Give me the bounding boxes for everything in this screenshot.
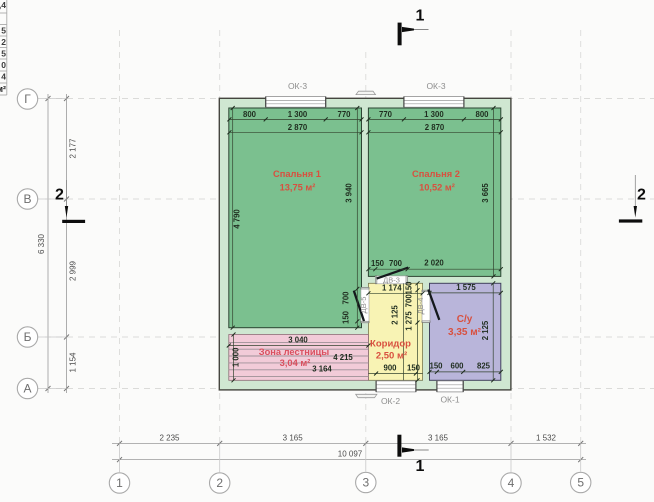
svg-text:2: 2	[637, 187, 646, 204]
svg-text:5: 5	[1, 25, 6, 35]
svg-text:3 165: 3 165	[283, 434, 304, 443]
svg-text:3 040: 3 040	[288, 336, 308, 345]
svg-text:770: 770	[379, 110, 393, 119]
svg-text:,4: ,4	[0, 0, 6, 10]
svg-text:13,75 м²: 13,75 м²	[280, 183, 316, 193]
svg-text:4 790: 4 790	[233, 209, 242, 229]
svg-text:2,50 м²: 2,50 м²	[376, 351, 407, 362]
svg-text:700: 700	[389, 259, 403, 268]
svg-text:ДВ-5: ДВ-5	[359, 297, 368, 314]
svg-text:700: 700	[342, 291, 351, 305]
svg-text:0: 0	[1, 60, 6, 70]
svg-text:2 125: 2 125	[391, 305, 400, 325]
svg-text:ОК-3: ОК-3	[288, 81, 307, 91]
svg-text:600: 600	[450, 362, 464, 371]
svg-text:1 300: 1 300	[424, 110, 444, 119]
svg-text:3,35 м²: 3,35 м²	[448, 327, 482, 338]
svg-text:2 020: 2 020	[424, 259, 444, 268]
svg-text:Спальня 1: Спальня 1	[273, 169, 321, 179]
svg-text:1 532: 1 532	[536, 434, 557, 443]
svg-text:900: 900	[383, 363, 397, 372]
svg-text:1 000: 1 000	[232, 347, 241, 367]
svg-text:800: 800	[243, 110, 257, 119]
svg-text:2: 2	[216, 476, 223, 490]
svg-text:2: 2	[1, 37, 6, 47]
svg-text:1 575: 1 575	[456, 283, 476, 292]
svg-text:5: 5	[577, 476, 584, 490]
svg-text:3: 3	[362, 476, 369, 490]
svg-text:2 870: 2 870	[288, 123, 308, 132]
svg-text:150: 150	[405, 281, 414, 295]
svg-text:5: 5	[1, 48, 6, 58]
svg-text:Б: Б	[24, 330, 32, 344]
svg-text:700: 700	[405, 294, 414, 308]
svg-text:2 870: 2 870	[425, 123, 445, 132]
svg-text:ОК-3: ОК-3	[426, 81, 445, 91]
svg-text:150: 150	[371, 259, 385, 268]
svg-text:1 154: 1 154	[69, 352, 78, 373]
svg-text:Спальня 2: Спальня 2	[412, 169, 460, 179]
svg-text:3 165: 3 165	[428, 434, 449, 443]
svg-text:2 235: 2 235	[159, 434, 180, 443]
svg-text:А: А	[23, 382, 31, 396]
svg-text:С/у: С/у	[457, 314, 473, 325]
svg-text:10,52 м²: 10,52 м²	[419, 183, 455, 193]
svg-text:Г: Г	[24, 92, 31, 106]
svg-text:ОК-1: ОК-1	[440, 395, 459, 405]
svg-text:150: 150	[342, 310, 351, 324]
svg-text:ОК-2: ОК-2	[381, 396, 400, 406]
svg-text:1: 1	[416, 8, 425, 25]
svg-text:Коридор: Коридор	[370, 338, 411, 349]
svg-text:2 999: 2 999	[69, 260, 78, 281]
svg-text:2 177: 2 177	[69, 138, 78, 159]
svg-text:1: 1	[116, 476, 123, 490]
svg-text:3 940: 3 940	[345, 183, 354, 203]
svg-text:800: 800	[475, 110, 489, 119]
svg-text:10 097: 10 097	[338, 450, 363, 459]
svg-text:В: В	[23, 192, 31, 206]
svg-text:1: 1	[416, 458, 425, 475]
svg-text:1 300: 1 300	[288, 110, 308, 119]
svg-text:Зона лестницы: Зона лестницы	[259, 347, 329, 357]
svg-text:м²: м²	[0, 84, 6, 94]
svg-text:4: 4	[1, 72, 6, 82]
svg-text:150: 150	[407, 363, 421, 372]
svg-text:4: 4	[508, 476, 515, 490]
svg-text:1 275: 1 275	[405, 311, 414, 331]
svg-text:3 164: 3 164	[312, 365, 332, 374]
svg-text:2: 2	[55, 187, 64, 204]
svg-text:6 330: 6 330	[37, 233, 46, 254]
svg-text:770: 770	[337, 110, 351, 119]
svg-text:3,04 м²: 3,04 м²	[280, 358, 311, 368]
svg-text:825: 825	[477, 362, 491, 371]
svg-text:3 665: 3 665	[481, 183, 490, 203]
svg-text:4 215: 4 215	[333, 353, 353, 362]
svg-text:2 125: 2 125	[481, 320, 490, 340]
svg-text:1 174: 1 174	[382, 284, 402, 293]
svg-text:150: 150	[429, 362, 443, 371]
